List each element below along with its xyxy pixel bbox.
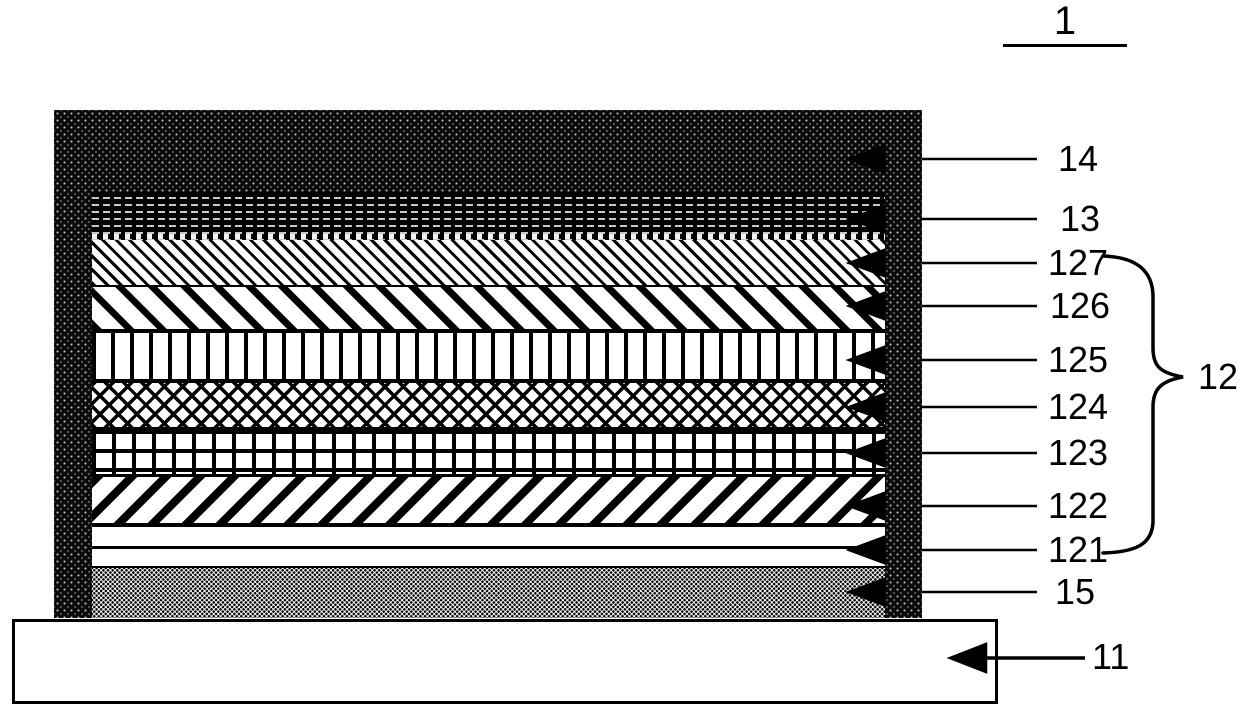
label-124: 124: [1048, 389, 1108, 425]
layer-11-substrate: [12, 619, 998, 704]
figure-number-underline: [1003, 44, 1127, 47]
layer-124: [92, 383, 885, 430]
label-122: 122: [1048, 488, 1108, 524]
patent-figure: 1: [0, 0, 1240, 715]
label-125: 125: [1048, 342, 1108, 378]
label-15: 15: [1055, 574, 1095, 610]
figure-number: 1: [1003, 1, 1127, 41]
layer-15: [92, 566, 885, 618]
layer-125: [92, 333, 885, 383]
layer-121: [92, 527, 885, 566]
layer-123: [92, 430, 885, 477]
label-126: 126: [1050, 288, 1110, 324]
layer-13: [92, 192, 885, 240]
label-13: 13: [1060, 201, 1100, 237]
layer-122: [92, 477, 885, 527]
label-12-group: 12: [1198, 359, 1238, 395]
layer-127: [92, 240, 885, 287]
label-14: 14: [1058, 141, 1098, 177]
layer-126: [92, 287, 885, 333]
label-121: 121: [1048, 532, 1108, 568]
group-brace-12: [1103, 256, 1183, 553]
label-127: 127: [1048, 245, 1108, 281]
label-123: 123: [1048, 435, 1108, 471]
device-stack-frame-layer-14: [54, 110, 922, 618]
label-11: 11: [1092, 639, 1129, 675]
